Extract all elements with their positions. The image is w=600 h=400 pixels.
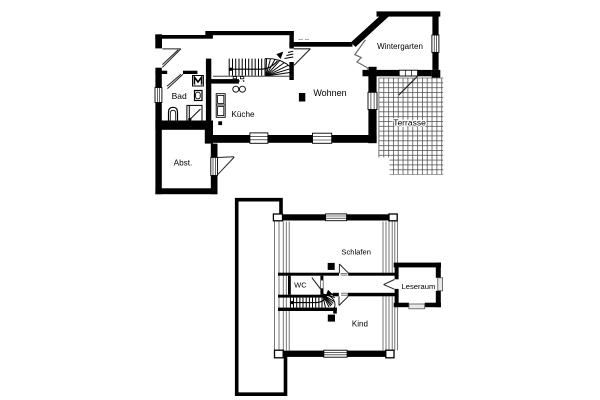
svg-text:Schlafen: Schlafen xyxy=(341,248,371,257)
svg-text:Kind: Kind xyxy=(352,319,368,328)
svg-text:WC: WC xyxy=(294,281,307,290)
svg-text:Küche: Küche xyxy=(231,110,255,119)
svg-text:Abst.: Abst. xyxy=(174,158,193,167)
svg-text:Wintergarten: Wintergarten xyxy=(377,42,423,51)
svg-text:Wohnen: Wohnen xyxy=(313,88,346,98)
svg-text:Leseraum: Leseraum xyxy=(402,282,436,291)
svg-text:Bad: Bad xyxy=(172,91,187,101)
svg-text:Terrasse: Terrasse xyxy=(393,117,426,127)
